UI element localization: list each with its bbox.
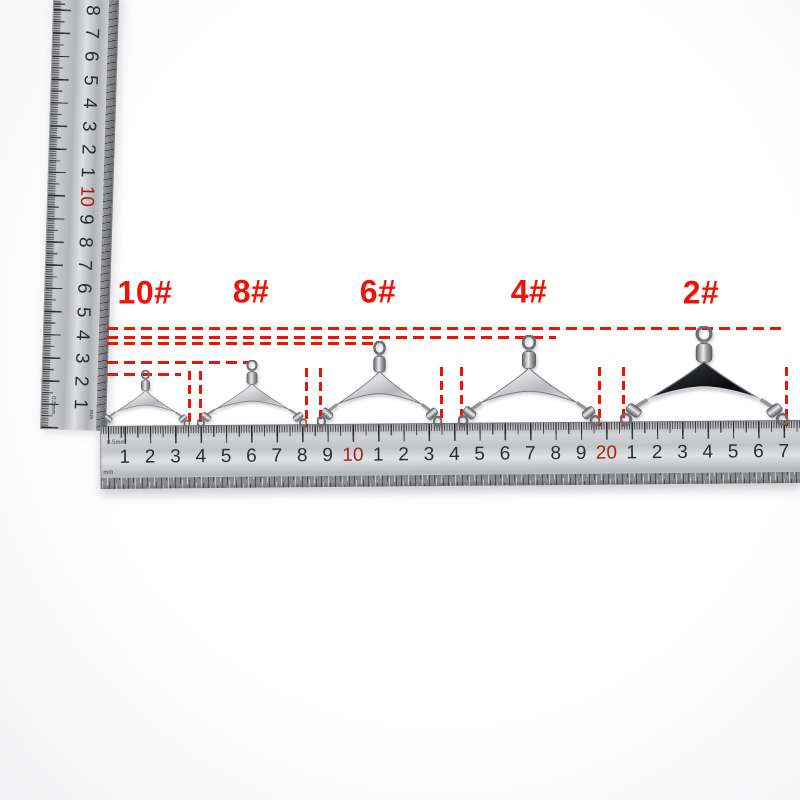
top-ring <box>697 327 711 341</box>
graduation-label: 0.5mm <box>50 396 57 415</box>
ruler-number: 8 <box>81 5 103 16</box>
ruler-number: 8 <box>550 443 561 465</box>
ruler-number: 5 <box>728 441 739 463</box>
ruler-number: 4 <box>78 98 100 109</box>
ruler-number: 6 <box>79 51 101 62</box>
top-barrel-swivel <box>141 380 149 391</box>
ruler-number: 2 <box>398 444 409 466</box>
ruler-number: 5 <box>79 74 101 85</box>
ruler-number: 5 <box>71 306 93 317</box>
ruler-number: 1 <box>119 447 130 469</box>
top-barrel-swivel <box>247 372 257 384</box>
ruler-number: 10 <box>75 185 98 207</box>
ruler-tick-marks <box>96 0 118 431</box>
unit-label: mm <box>87 409 93 419</box>
ruler-tick-marks <box>41 0 71 430</box>
ruler-tick-marks <box>41 0 61 429</box>
ruler-number: 7 <box>271 445 282 467</box>
top-ring <box>374 342 384 354</box>
ruler-number: 6 <box>753 441 764 463</box>
ruler-number: 3 <box>70 353 92 364</box>
ruler-number: 1 <box>373 445 384 467</box>
ruler-number: 2 <box>69 376 91 387</box>
ruler-number: 8 <box>74 237 96 248</box>
vertical-steel-ruler: 87654321109876543210.5mmmm <box>40 0 119 431</box>
ruler-number: 6 <box>246 446 257 468</box>
left-ring <box>621 414 631 424</box>
swivel-rig-4 <box>458 335 600 428</box>
ruler-number: 7 <box>525 443 536 465</box>
top-barrel-swivel <box>696 344 712 362</box>
size-label: 4# <box>511 274 548 311</box>
graduation-label: 0.5mm <box>107 440 125 446</box>
size-label: 6# <box>360 274 397 311</box>
ruler-number: 3 <box>77 121 99 132</box>
ruler-number: 7 <box>73 260 95 271</box>
ruler-number: 7 <box>778 441 789 463</box>
right-ring <box>184 421 189 427</box>
left-ring <box>318 417 326 426</box>
top-barrel-swivel <box>374 356 386 372</box>
ruler-number: 4 <box>702 442 713 464</box>
right-ring <box>434 417 442 426</box>
ruler-number: 10 <box>342 445 363 467</box>
ruler-number: 3 <box>170 446 181 468</box>
ruler-number: 4 <box>195 446 206 468</box>
size-label: 2# <box>683 275 720 312</box>
ruler-number: 6 <box>500 443 511 465</box>
swivel-rig-10 <box>101 370 190 428</box>
ruler-number: 2 <box>652 442 663 464</box>
ruler-number: 1 <box>626 442 637 464</box>
ruler-number: 3 <box>424 444 435 466</box>
triangle-blade <box>337 372 421 405</box>
top-ring <box>247 361 256 371</box>
size-label: 10# <box>118 275 173 312</box>
right-ring <box>777 414 787 424</box>
ruler-number: 6 <box>72 283 94 294</box>
swivel-rig-2 <box>620 326 788 427</box>
triangle-blade <box>215 384 289 410</box>
unit-label: mm <box>103 470 113 476</box>
ruler-number: 2 <box>76 144 98 155</box>
ruler-number: 3 <box>677 442 688 464</box>
top-barrel-swivel <box>522 351 535 368</box>
top-ring <box>523 336 535 349</box>
ruler-number: 2 <box>145 447 156 469</box>
right-ring <box>300 419 307 426</box>
ruler-number: 20 <box>596 442 617 464</box>
right-ring <box>591 416 600 425</box>
ruler-number: 9 <box>322 445 333 467</box>
ruler-number: 4 <box>71 329 93 340</box>
ruler-number: 5 <box>474 444 485 466</box>
triangle-blade <box>481 368 577 403</box>
ruler-number: 8 <box>297 445 308 467</box>
ruler-tick-marks <box>41 0 65 429</box>
left-ring <box>101 421 106 427</box>
ruler-tick-marks <box>101 472 800 489</box>
swivel-rig-8 <box>197 360 307 428</box>
product-photo: 87654321109876543210.5mmmm 1234567891012… <box>0 0 800 800</box>
left-ring <box>459 416 468 425</box>
ruler-number: 7 <box>80 28 102 39</box>
ruler-number: 9 <box>576 443 587 465</box>
swivel-rig-6 <box>317 341 442 428</box>
ruler-number: 9 <box>74 213 96 224</box>
triangle-blade <box>116 390 176 412</box>
top-ring <box>142 370 149 378</box>
size-label: 8# <box>233 274 270 311</box>
left-ring <box>197 419 204 426</box>
ruler-number: 5 <box>221 446 232 468</box>
ruler-number: 4 <box>449 444 460 466</box>
horizontal-steel-ruler: 123456789101234567892012345670.5mmmm <box>100 420 800 489</box>
ruler-number: 1 <box>76 167 98 178</box>
